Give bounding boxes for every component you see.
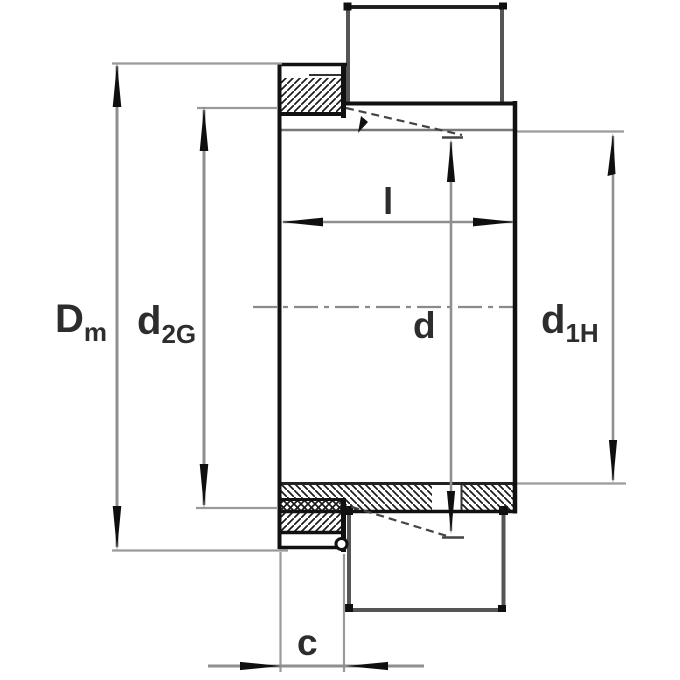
sleeve-hatch-right <box>462 485 514 511</box>
bearing-ring-bottom <box>344 506 508 612</box>
corner-dot <box>345 604 353 612</box>
dim-label-c: c <box>297 624 318 661</box>
corner-dot <box>499 3 507 10</box>
locknut-bottom-section <box>278 498 348 552</box>
dimension-l <box>281 218 515 227</box>
nut-hatch-top <box>281 78 341 112</box>
lockwasher-tab <box>336 539 347 550</box>
corner-dot <box>344 3 352 11</box>
corner-dot <box>498 605 506 612</box>
dim-label-Dm: Dm <box>55 299 107 339</box>
bearing-ring-top <box>344 3 508 105</box>
adapter-sleeve-dimension-drawing: Dm d2G l d d1H c <box>0 0 680 680</box>
dim-label-d: d <box>413 307 436 344</box>
dim-label-d1H: d1H <box>541 300 599 340</box>
taper-hidden-lines <box>339 108 464 538</box>
dim-label-d2G: d2G <box>137 301 196 341</box>
dimension-d1H <box>608 133 618 483</box>
dim-label-l: l <box>383 183 393 220</box>
locknut-top-section <box>278 63 348 118</box>
dimension-d <box>447 139 455 534</box>
nut-hatch-bottom <box>281 501 341 531</box>
